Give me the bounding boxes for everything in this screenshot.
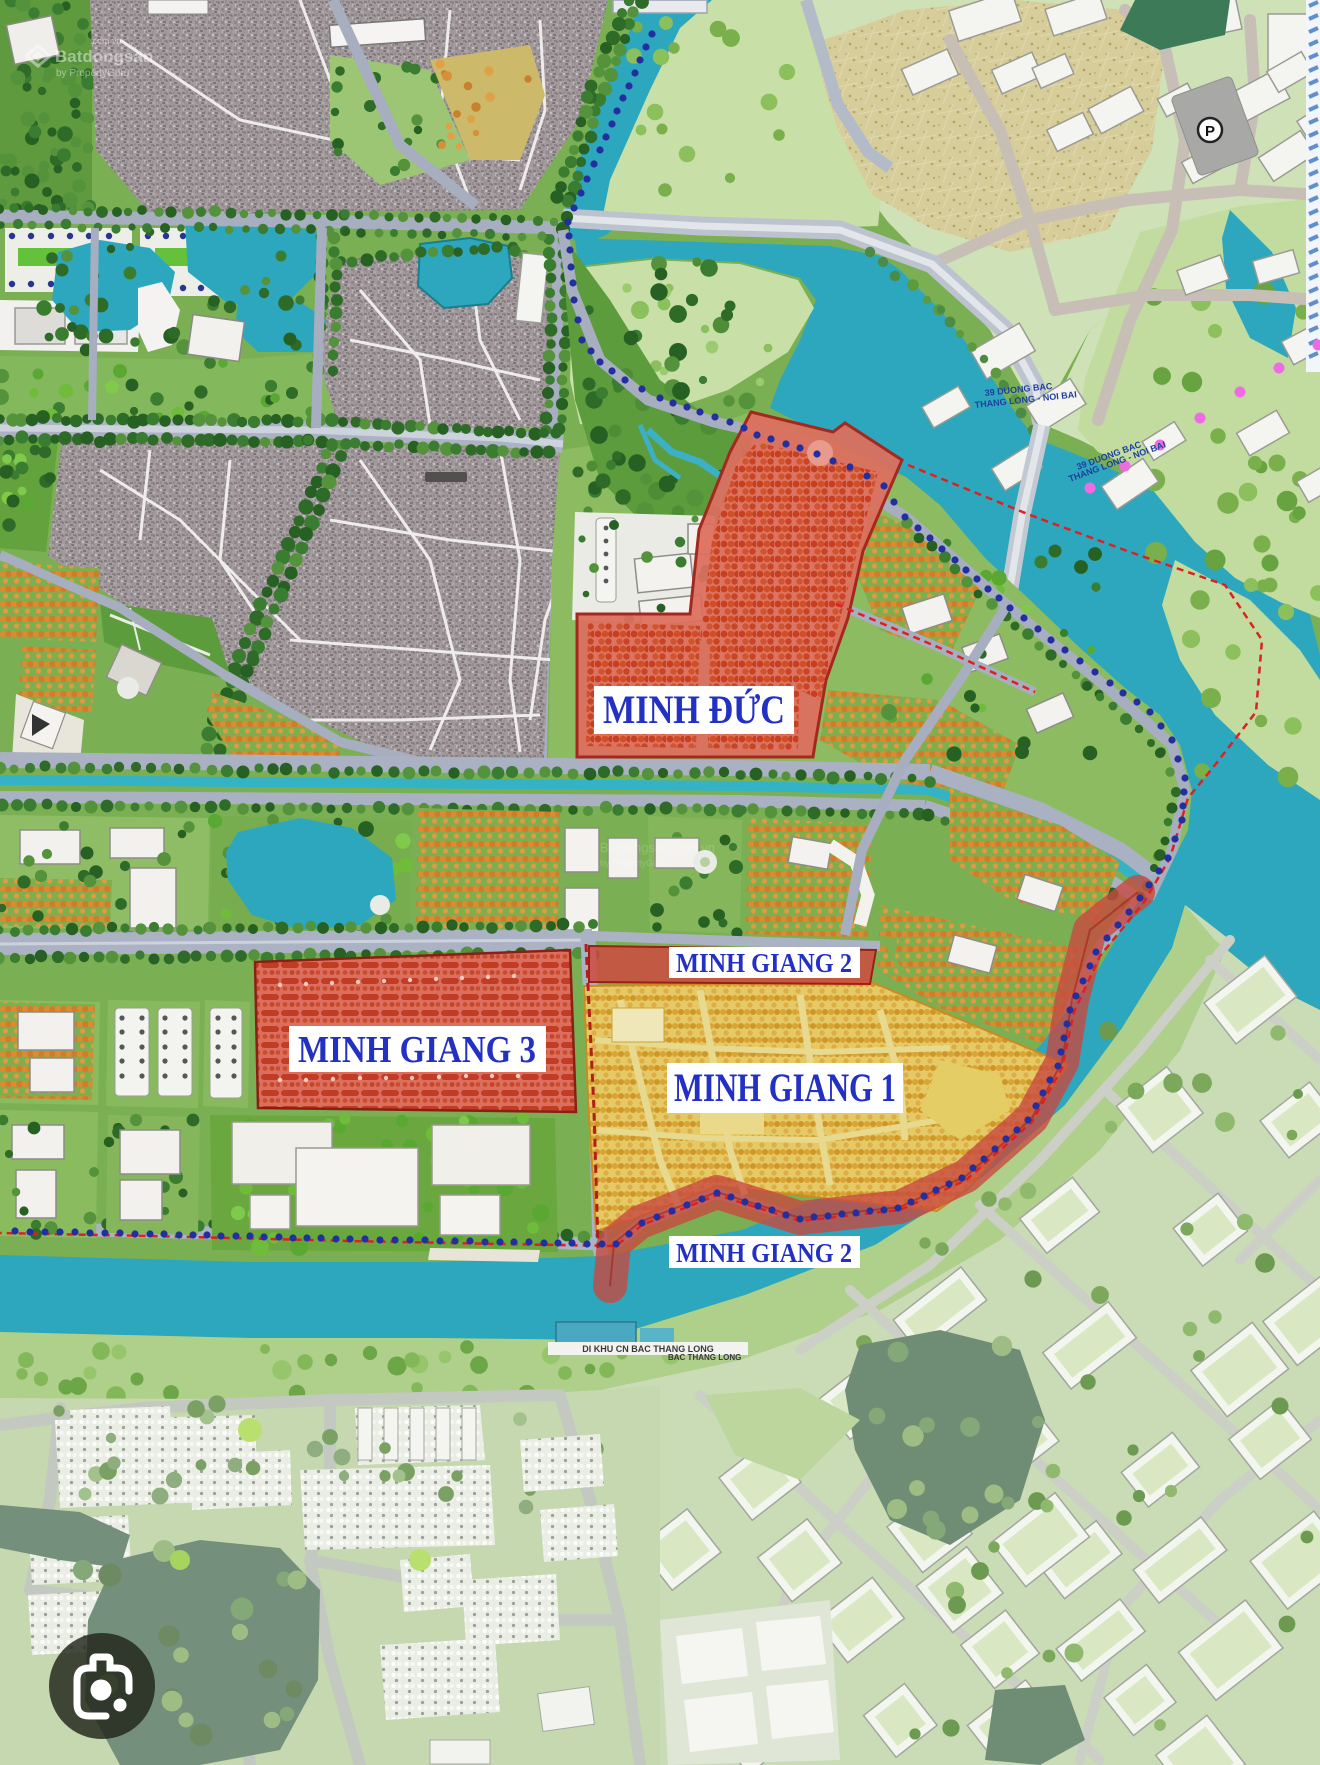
svg-text:.com.vn: .com.vn bbox=[90, 36, 122, 46]
svg-text:MINH GIANG 3: MINH GIANG 3 bbox=[298, 1029, 536, 1071]
svg-text:MINH GIANG 2: MINH GIANG 2 bbox=[676, 948, 852, 978]
svg-text:MINH ĐỨC: MINH ĐỨC bbox=[603, 687, 785, 732]
svg-text:Batdongsan.com.vn: Batdongsan.com.vn bbox=[600, 840, 715, 855]
svg-text:MINH GIANG 2: MINH GIANG 2 bbox=[676, 1238, 852, 1268]
svg-text:Batdongsan: Batdongsan bbox=[55, 47, 153, 66]
svg-text:BAC THANG LONG: BAC THANG LONG bbox=[668, 1353, 741, 1362]
svg-text:by PropertyGuru: by PropertyGuru bbox=[600, 858, 666, 868]
svg-text:MINH GIANG 1: MINH GIANG 1 bbox=[674, 1065, 896, 1110]
svg-text:P: P bbox=[1205, 123, 1215, 140]
svg-text:by PropertyGuru: by PropertyGuru bbox=[56, 68, 129, 79]
